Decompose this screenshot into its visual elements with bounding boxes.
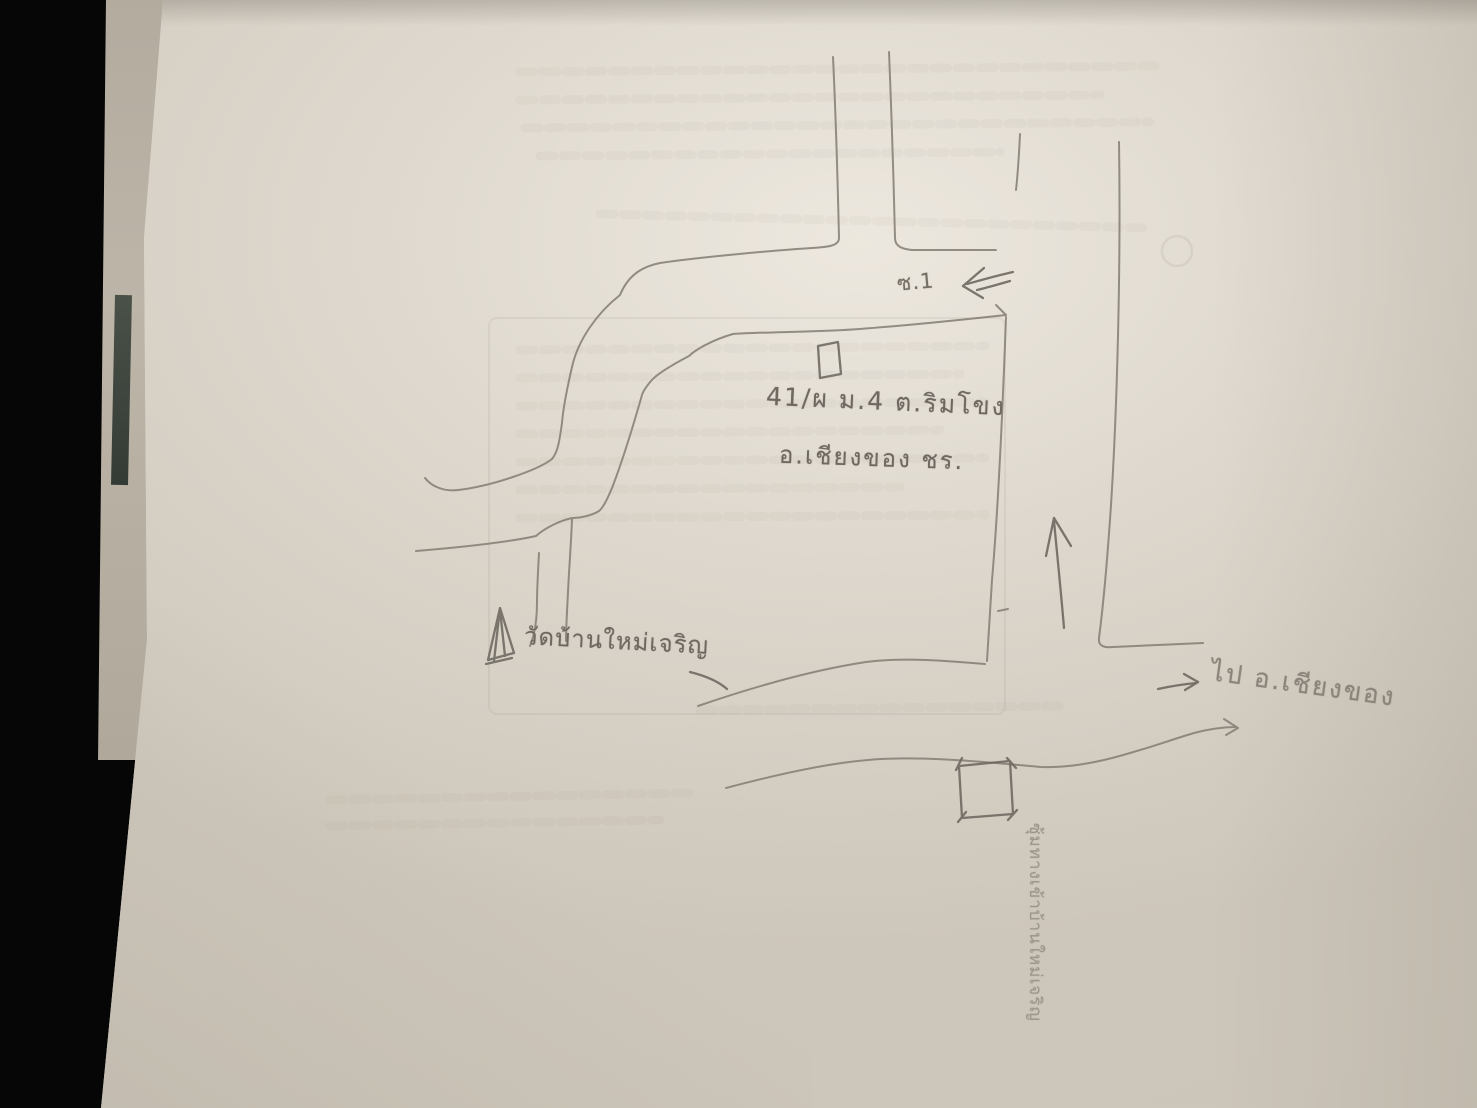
- gate-marker: [956, 758, 1017, 822]
- block-edge-tick: [998, 609, 1008, 611]
- temple-triangle-icon: [486, 608, 514, 664]
- pencil-sketch-layer: [0, 0, 1477, 1108]
- bottom-road-north-edge: [698, 660, 985, 706]
- up-arrow-icon: [1046, 518, 1071, 628]
- road-east-vertical-edge: [1099, 142, 1203, 647]
- left-arrow-icon: [963, 268, 1013, 298]
- bleed-through-ghost-text: [330, 66, 1192, 826]
- temple-label-underline-flick: [690, 672, 727, 689]
- soi-label: ซ.1: [896, 264, 936, 300]
- gate-label-vertical: ซุ้มทางเข้าบ้านใหม่เจริญ: [1022, 823, 1049, 1022]
- right-arrow-icon: [1158, 674, 1198, 690]
- road-segment-short: [1016, 134, 1020, 190]
- block-corner-tick: [996, 305, 1006, 315]
- address-line2: อ.เชียงของ ชร.: [778, 435, 965, 480]
- bleed-through-circled-number: [1162, 236, 1192, 266]
- bottom-road-south-edge: [726, 727, 1236, 788]
- photo-of-hand-drawn-map: ซ.1 41/ผ ม.4 ต.ริมโขง อ.เชียงของ ชร. วัด…: [0, 0, 1477, 1108]
